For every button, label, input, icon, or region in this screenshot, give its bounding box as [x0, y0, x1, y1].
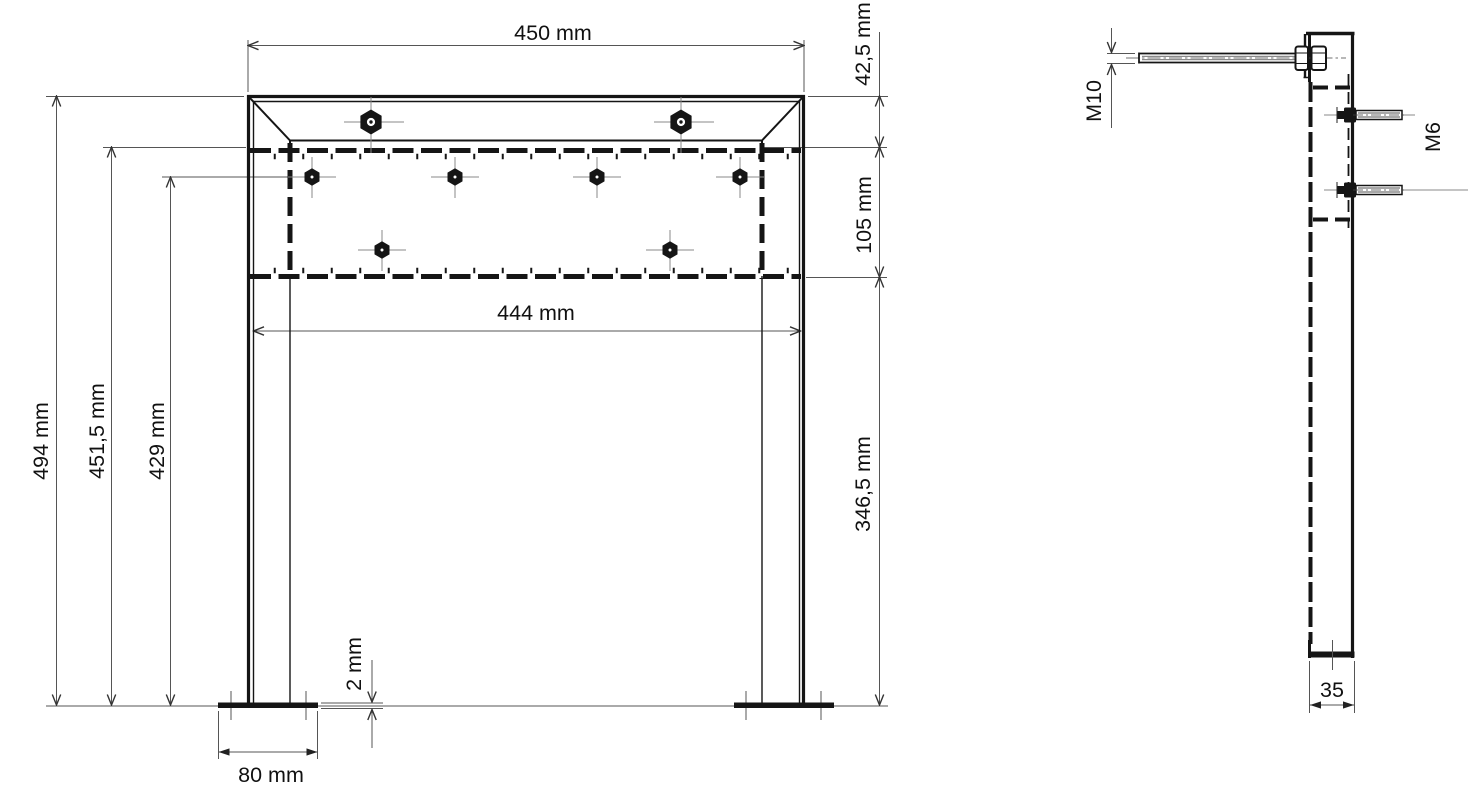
side-hidden-plate: [1313, 74, 1351, 228]
m6-bolt: [358, 230, 406, 271]
dim-494: 494 mm: [29, 96, 244, 705]
dim-label-height-to-bolt-row: 429 mm: [145, 402, 169, 480]
hidden-sign-plate: [250, 143, 801, 279]
m6-bolt: [431, 157, 479, 198]
dim-2: 2 mm: [321, 637, 383, 748]
m10-rod-assembly: [1126, 47, 1346, 71]
m10-washer-nut: [1296, 47, 1309, 71]
m6-side-bolts: M6: [1324, 107, 1468, 198]
m6-side-bolt: [1337, 182, 1405, 198]
dim-label-plate-height: 105 mm: [852, 176, 876, 254]
side-profile: [1304, 32, 1355, 670]
right-foot-plate: [734, 703, 834, 709]
m6-bolt: [288, 157, 336, 198]
engineering-drawing-page: 450 mm 494 mm 451,5 mm 429 mm 42,: [0, 0, 1483, 800]
technical-drawing: 450 mm 494 mm 451,5 mm 429 mm 42,: [0, 0, 1483, 800]
fastener-pattern: [288, 97, 764, 271]
dim-444: 444 mm: [254, 301, 801, 331]
dim-label-foot-width: 80 mm: [238, 763, 304, 787]
dim-m10: M10: [1082, 28, 1135, 128]
m10-nut: [654, 97, 714, 153]
m10-lock-nut: [1312, 47, 1327, 71]
m6-bolt: [573, 157, 621, 198]
dim-label-height-to-plate: 451,5 mm: [85, 383, 109, 479]
m10-nut: [344, 97, 404, 153]
left-foot-plate: [218, 703, 318, 709]
side-view: M10 M6 35: [1082, 28, 1468, 713]
m6-side-bolt: [1337, 107, 1405, 123]
front-view: 450 mm 494 mm 451,5 mm 429 mm 42,: [29, 2, 888, 787]
dim-label-width-overall: 450 mm: [514, 21, 592, 45]
dim-chain-right: 42,5 mm 105 mm 346,5 mm: [764, 2, 888, 705]
dim-label-side-bolt: M6: [1421, 122, 1445, 152]
m6-bolt: [646, 230, 694, 271]
dim-label-top-bolt: M10: [1082, 80, 1106, 122]
dim-label-profile-depth: 35: [1320, 678, 1344, 702]
m6-bolt: [716, 157, 764, 198]
frame-structure: [247, 95, 805, 703]
dim-label-inner-width: 444 mm: [497, 301, 575, 325]
dim-label-leg-clear-height: 346,5 mm: [851, 436, 875, 532]
dim-label-foot-thickness: 2 mm: [342, 637, 366, 691]
dim-80: 80 mm: [219, 711, 318, 787]
dim-429: 429 mm: [145, 177, 293, 705]
dim-450: 450 mm: [248, 21, 804, 92]
dim-label-channel-height: 42,5 mm: [851, 2, 875, 86]
dim-label-height-overall: 494 mm: [29, 402, 53, 480]
